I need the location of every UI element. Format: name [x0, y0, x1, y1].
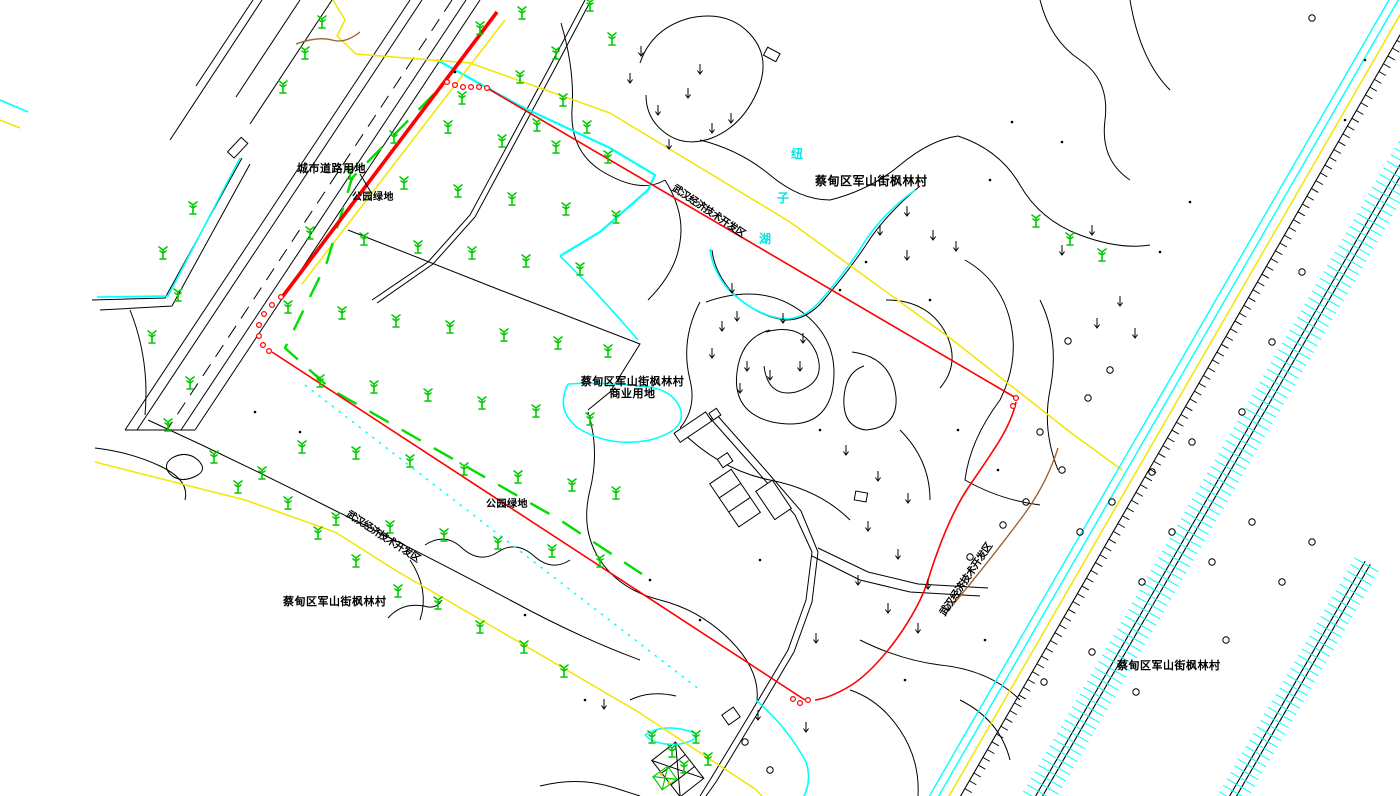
river-embankment-band: [900, 0, 1400, 796]
label-road-use: 城市道路用地: [297, 163, 366, 175]
label-commercial-line1: 蔡甸区军山街枫林村: [570, 376, 695, 388]
label-park-green-bottom: 公园绿地: [486, 499, 528, 511]
map-linework: [0, 0, 1400, 796]
label-commercial-parcel: 蔡甸区军山街枫林村 商业用地: [570, 376, 695, 400]
label-commercial-line2: 商业用地: [570, 388, 695, 400]
main-road: [125, 0, 480, 430]
label-village-right: 蔡甸区军山街枫林村: [1117, 660, 1221, 672]
label-village-top: 蔡甸区军山街枫林村: [815, 175, 928, 187]
label-lake-char-2: 子: [777, 192, 790, 204]
label-lake-char-1: 纽: [791, 148, 804, 160]
spot-dots: [254, 59, 1367, 702]
brown-lines: [296, 32, 1058, 606]
label-village-left: 蔡甸区军山街枫林村: [283, 596, 387, 608]
label-lake-char-3: 湖: [759, 233, 772, 245]
top-lane: [348, 0, 640, 410]
map-canvas: 城市道路用地 公园绿地 蔡甸区军山街枫林村 蔡甸区军山街枫林村 商业用地 公园绿…: [0, 0, 1400, 796]
water-lines: [0, 60, 915, 796]
label-park-green-top: 公园绿地: [352, 192, 394, 204]
left-dike: [92, 137, 250, 415]
